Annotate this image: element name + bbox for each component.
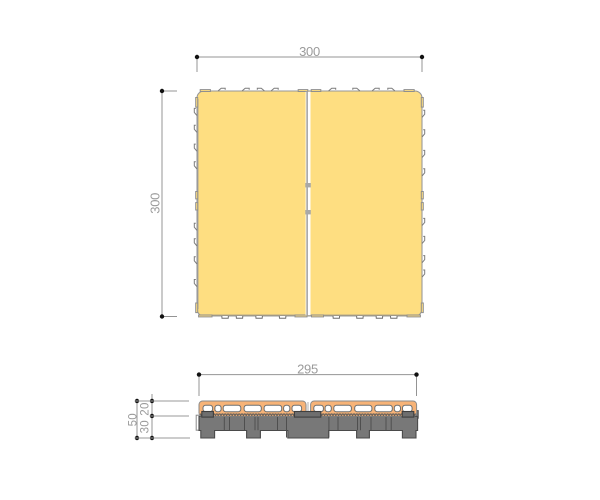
svg-text:300: 300 — [299, 44, 320, 59]
svg-text:300: 300 — [147, 193, 162, 214]
svg-text:295: 295 — [297, 362, 318, 377]
svg-text:30: 30 — [140, 420, 152, 433]
svg-text:50: 50 — [128, 413, 140, 426]
svg-text:20: 20 — [140, 402, 152, 415]
